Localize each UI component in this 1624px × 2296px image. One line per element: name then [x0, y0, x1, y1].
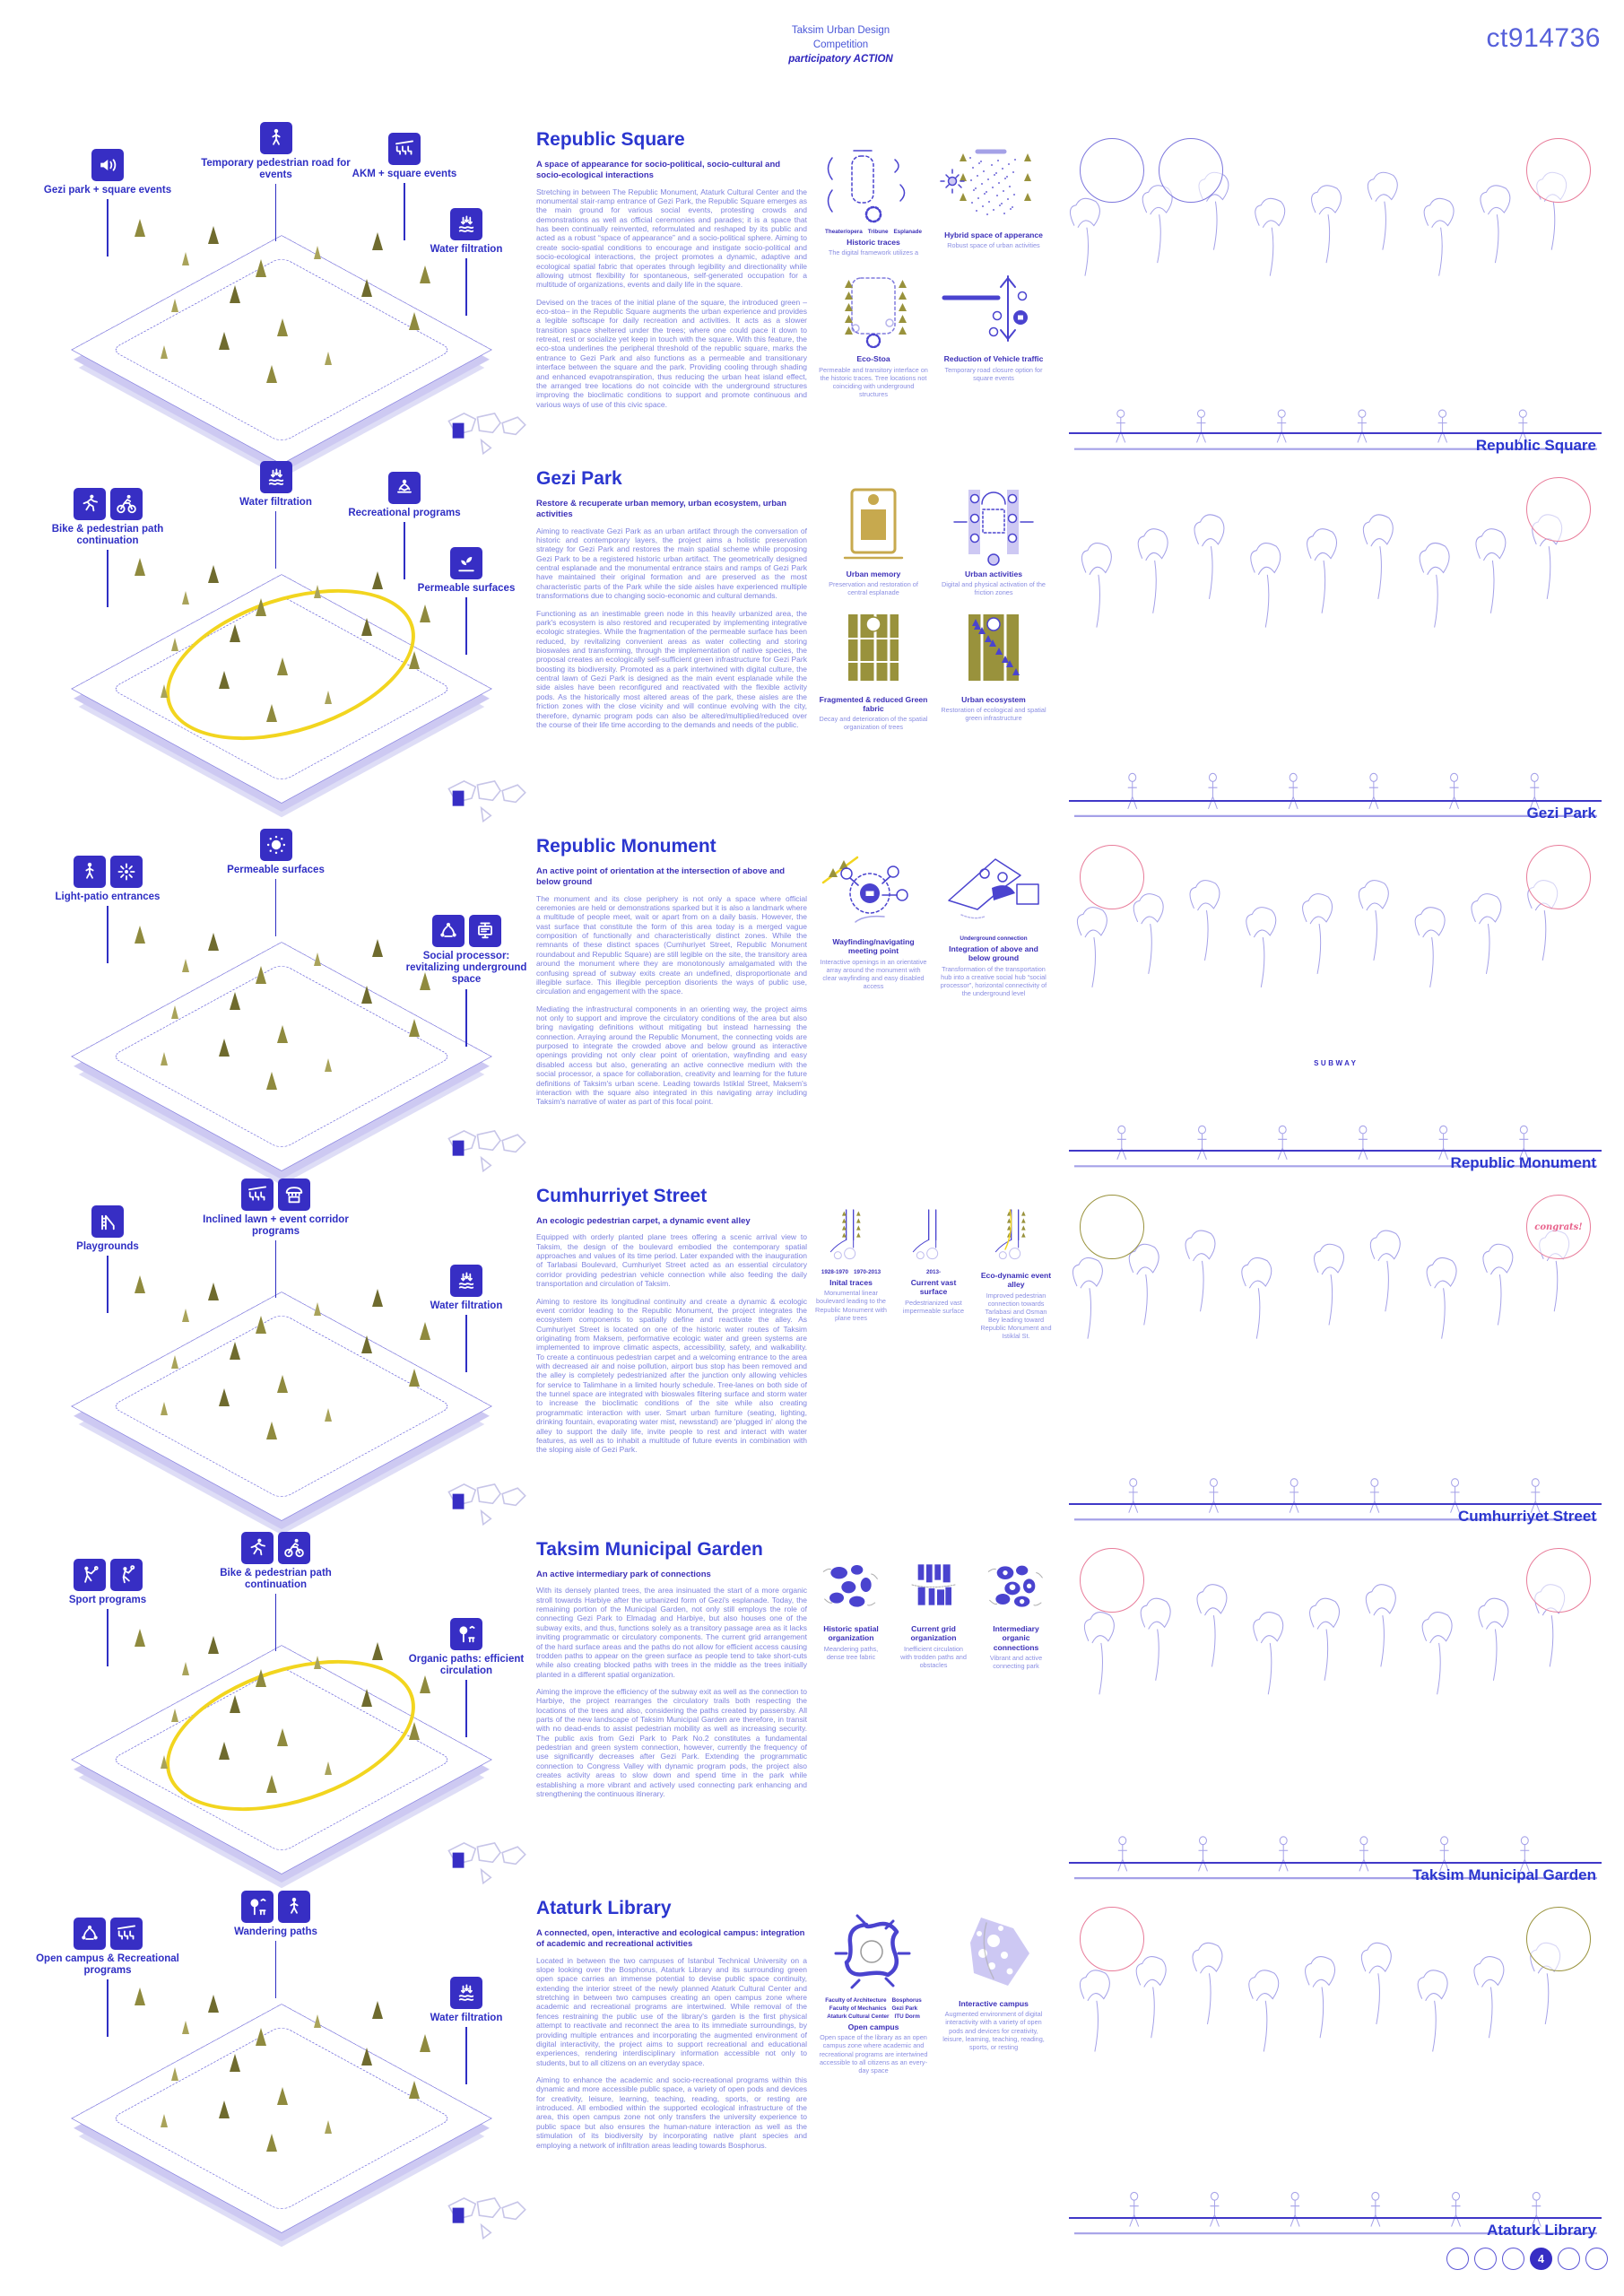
mini-diagram: Urban memoryPreservation and restoration…: [819, 484, 928, 597]
section-subhead: A connected, open, interactive and ecolo…: [536, 1928, 807, 1951]
callout-1: Bike & pedestrian path continuation: [197, 1532, 354, 1651]
annotation-badge: [1159, 138, 1223, 203]
axon-diagram-gezi-park: Bike & pedestrian path continuationWater…: [27, 465, 534, 832]
diagram-annotation: 1928-1970: [821, 1269, 848, 1275]
annotation-badge: [1080, 1195, 1144, 1259]
page-dot-6[interactable]: [1585, 2248, 1608, 2270]
illustration-note: SUBWAY: [1314, 1059, 1358, 1067]
callout-0: Bike & pedestrian path continuation: [36, 488, 179, 607]
illustration-republic-monument: SUBWAYRepublic Monument: [1067, 843, 1603, 1175]
diagram-drawing: [819, 145, 928, 228]
callout-leader-line: [107, 550, 109, 607]
callout-leader-line: [107, 906, 109, 963]
diagram-annotation: Faculty of Architecture: [825, 1997, 886, 2004]
tree-icon: [361, 1335, 372, 1353]
axon-diagram-taksim-municipal-garden: Sport programsBike & pedestrian path con…: [27, 1535, 534, 1894]
tree-icon: [230, 992, 240, 1010]
callout-leader-line: [275, 511, 277, 569]
kiosk-icon: [278, 1178, 310, 1211]
tree-icon: [372, 1289, 383, 1307]
site-key-map: [443, 1831, 529, 1885]
tree-icon: [266, 1775, 277, 1793]
diagram-caption: Robust space of urban activities: [944, 241, 1043, 249]
tree-icon: [314, 1656, 321, 1669]
annotation-badge: [1080, 138, 1144, 203]
text-column: Gezi ParkRestore & recuperate urban memo…: [536, 468, 807, 737]
sprout-icon: [450, 547, 482, 579]
tree-icon: [372, 1642, 383, 1660]
site-key-map: [443, 1473, 529, 1526]
mini-diagram-column: Wayfinding/navigating meeting pointInter…: [812, 852, 1055, 997]
tree-icon: [219, 332, 230, 350]
callout-label: Sport programs: [36, 1595, 179, 1606]
badge-row: [1080, 845, 1591, 909]
water-filtration-icon: [450, 1265, 482, 1297]
tree-icon: [161, 1052, 168, 1065]
badge-row: [1080, 1548, 1591, 1613]
callout-leader-line: [107, 1979, 109, 2037]
callout-leader-line: [465, 597, 467, 655]
text-column: Republic MonumentAn active point of orie…: [536, 836, 807, 1115]
mini-diagram: Theater/operaTribuneEsplanadeHistoric tr…: [819, 145, 928, 257]
diagram-annotation: 1970-2013: [854, 1269, 881, 1275]
callout-leader-line: [465, 1315, 467, 1372]
callout-1: Inclined lawn + event corridor programs: [197, 1178, 354, 1298]
callout-0: Light-patio entrances: [36, 856, 179, 963]
diagram-annotation: ITU Dorm: [894, 2013, 919, 2020]
tree-icon: [230, 2054, 240, 2072]
tree-icon: [325, 1761, 332, 1775]
section-paragraph-1: Located in between the two campuses of I…: [536, 1956, 807, 2067]
page-dot-4[interactable]: 4: [1530, 2248, 1552, 2270]
tree-icon: [256, 1316, 266, 1334]
page-indicator: 4: [1446, 2248, 1608, 2270]
theater-seats-icon: [110, 1918, 143, 1950]
callout-leader-line: [275, 1941, 277, 1998]
callout-2: Organic paths: efficient circulation: [404, 1618, 529, 1737]
diagram-caption: Meandering paths, dense tree fabric: [815, 1645, 887, 1661]
site-key-map: [443, 1119, 529, 1173]
section-heading: Ataturk Library: [536, 1898, 807, 1919]
axon-diagram-republic-monument: Light-patio entrancesPermeable surfacesS…: [27, 832, 534, 1182]
tree-icon: [182, 591, 189, 604]
diagram-annotation: Gezi Park: [891, 2005, 917, 2012]
diagram-annotation: Tribune: [868, 229, 889, 235]
tree-icon: [325, 1058, 332, 1072]
tree-icon: [277, 1728, 288, 1746]
diagram-drawing: [980, 1202, 1052, 1268]
title-line1: Taksim Urban Design: [762, 23, 919, 38]
illustration-baseline: [1069, 800, 1602, 802]
diagram-drawing: [939, 145, 1048, 228]
section-paragraph-1: Equipped with orderly planted plane tree…: [536, 1232, 807, 1288]
tree-icon: [182, 252, 189, 265]
tree-icon: [230, 1342, 240, 1360]
tree-icon: [230, 1695, 240, 1713]
illustration-gezi-park: Gezi Park: [1067, 475, 1603, 825]
callout-1: Wandering paths: [197, 1891, 354, 1998]
tree-icon: [161, 1402, 168, 1415]
axon-diagram-ataturk-library: Open campus & Recreational programsWande…: [27, 1894, 534, 2249]
annotation-badge: [1080, 1907, 1144, 1971]
section-subhead: An ecologic pedestrian carpet, a dynamic…: [536, 1216, 807, 1227]
mini-diagram-column: 1928-19701970-2013Inital tracesMonumenta…: [812, 1202, 1055, 1340]
tree-icon: [256, 598, 266, 616]
water-filtration-icon: [450, 208, 482, 240]
mini-diagram: Interactive campusAugmented environment …: [939, 1914, 1048, 2074]
tree-icon: [361, 1689, 372, 1707]
tree-icon: [256, 966, 266, 984]
callout-0: Sport programs: [36, 1559, 179, 1666]
mini-diagram: Intermediary organic connectionsVibrant …: [980, 1555, 1052, 1670]
diagram-drawing: [939, 484, 1048, 567]
diagram-title: Inital traces: [815, 1278, 887, 1287]
tree-icon: [171, 1709, 178, 1722]
diagram-annotation: Theater/opera: [825, 229, 863, 235]
diagram-drawing: [898, 1555, 969, 1622]
callout-0: Playgrounds: [36, 1205, 179, 1313]
callout-label: Light-patio entrances: [36, 891, 179, 903]
annotation-badge: [1080, 1548, 1144, 1613]
tree-icon: [266, 1072, 277, 1090]
callout-leader-line: [465, 989, 467, 1047]
page-dot-3[interactable]: [1502, 2248, 1524, 2270]
meditation-icon: [388, 472, 421, 504]
callout-0: Open campus & Recreational programs: [36, 1918, 179, 2037]
callout-label: Permeable surfaces: [197, 865, 354, 876]
tree-icon: [182, 959, 189, 972]
tree-icon: [219, 1039, 230, 1057]
callout-label: Playgrounds: [36, 1241, 179, 1253]
diagram-title: Urban activities: [939, 570, 1048, 578]
diagram-drawing: [939, 1914, 1048, 1996]
badge-row: [1080, 1907, 1591, 1971]
callout-label: AKM + square events: [337, 169, 472, 180]
tree-icon: [161, 2114, 168, 2127]
cyclist-icon: [278, 1532, 310, 1564]
diagram-caption: Pedestrianized vast impermeable surface: [898, 1299, 969, 1315]
diagram-drawing: [939, 610, 1048, 692]
tree-icon: [182, 2021, 189, 2034]
mini-diagram: 2013-Current vast surfacePedestrianized …: [898, 1202, 969, 1340]
illustration-baseline: [1069, 1150, 1602, 1152]
section-subhead: A space of appearance for socio-politica…: [536, 160, 807, 182]
callout-2: Water filtration: [404, 1265, 529, 1372]
mini-diagram: Faculty of ArchitectureBosphorusFaculty …: [819, 1914, 928, 2074]
presentation-board-icon: [469, 915, 501, 947]
theater-seats-icon: [241, 1178, 274, 1211]
site-key-map: [443, 770, 529, 823]
tree-icon: [314, 246, 321, 259]
callout-leader-line: [107, 1609, 109, 1666]
illustration-label: Ataturk Library: [1487, 2222, 1596, 2239]
section-paragraph-2: Aiming to enhance the academic and socio…: [536, 2075, 807, 2150]
section-paragraph-2: Aiming the improve the efficiency of the…: [536, 1687, 807, 1798]
tree-icon: [325, 1408, 332, 1422]
pedestrian-icon: [278, 1891, 310, 1923]
tree-icon: [361, 618, 372, 636]
section-heading: Republic Square: [536, 129, 807, 151]
diagram-title: Current grid organization: [898, 1624, 969, 1643]
tree-icon: [182, 1309, 189, 1322]
diagram-title: Eco-dynamic event alley: [980, 1271, 1052, 1290]
illustration-label: Republic Monument: [1451, 1154, 1596, 1172]
diagram-drawing: [939, 269, 1048, 352]
tree-icon: [256, 1669, 266, 1687]
mini-diagram: Fragmented & reduced Green fabricDecay a…: [819, 610, 928, 732]
people-network-icon: [432, 915, 465, 947]
callout-label: Temporary pedestrian road for events: [197, 158, 354, 181]
people-network-icon: [74, 1918, 106, 1950]
annotation-badge: [1526, 1548, 1591, 1613]
diagram-drawing: [819, 484, 928, 567]
diagram-caption: Interactive openings in an orientative a…: [819, 958, 928, 990]
tree-icon: [171, 299, 178, 312]
tree-icon: [161, 684, 168, 698]
mini-diagram: Eco-StoaPermeable and transitory interfa…: [819, 269, 928, 398]
section-paragraph-2: Functioning as an inestimable green node…: [536, 609, 807, 730]
axon-diagram-republic-square: Gezi park + square eventsTemporary pedes…: [27, 126, 534, 465]
callout-label: Water filtration: [404, 1300, 529, 1312]
tree-icon: [361, 2048, 372, 2066]
text-column: Republic SquareA space of appearance for…: [536, 129, 807, 417]
runner-icon: [241, 1532, 274, 1564]
callout-label: Recreational programs: [337, 508, 472, 519]
mini-diagram: Urban ecosystemRestoration of ecological…: [939, 610, 1048, 732]
board-title: Taksim Urban Design Competition particip…: [762, 23, 919, 66]
diagram-caption: Preservation and restoration of central …: [819, 580, 928, 596]
permeable-dots-icon: [260, 829, 292, 861]
cyclist-icon: [110, 488, 143, 520]
callout-leader-line: [275, 1594, 277, 1651]
section-paragraph-2: Mediating the infrastructural components…: [536, 1004, 807, 1107]
badge-row: [1080, 477, 1591, 542]
tree-icon: [277, 1025, 288, 1043]
tree-icon: [361, 986, 372, 1004]
light-burst-icon: [110, 856, 143, 888]
diagram-title: Wayfinding/navigating meeting point: [819, 937, 928, 956]
diagram-drawing: [815, 1202, 887, 1268]
section-heading: Cumhurriyet Street: [536, 1186, 807, 1207]
diagram-drawing: [819, 1914, 928, 1996]
tree-icon: [219, 671, 230, 689]
section-cumhurriyet-street: PlaygroundsInclined lawn + event corrido…: [0, 1182, 1624, 1535]
diagram-caption: Improved pedestrian connection towards T…: [980, 1291, 1052, 1341]
illustration-taksim-municipal-garden: Taksim Municipal Garden: [1067, 1546, 1603, 1887]
title-line2: Competition: [762, 38, 919, 52]
illustration-baseline: [1069, 432, 1602, 434]
tree-icon: [372, 2001, 383, 2019]
speaker-icon: [91, 149, 124, 181]
diagram-title: Historic spatial organization: [815, 1624, 887, 1643]
diagram-title: Open campus: [819, 2022, 928, 2031]
section-gezi-park: Bike & pedestrian path continuationWater…: [0, 465, 1624, 832]
mini-diagram-column: Historic spatial organizationMeandering …: [812, 1555, 1055, 1670]
mini-diagram-column: Faculty of ArchitectureBosphorusFaculty …: [812, 1914, 1055, 2074]
tree-icon: [325, 691, 332, 704]
callout-label: Wandering paths: [197, 1926, 354, 1938]
diagram-title: Urban memory: [819, 570, 928, 578]
diagram-drawing: [898, 1202, 969, 1268]
callout-leader-line: [465, 258, 467, 316]
mini-diagram: Underground connectionIntegration of abo…: [939, 852, 1048, 997]
callout-leader-line: [275, 184, 277, 241]
section-subhead: An active point of orientation at the in…: [536, 866, 807, 889]
callout-leader-line: [107, 1256, 109, 1313]
section-heading: Republic Monument: [536, 836, 807, 857]
page-dot-5[interactable]: [1558, 2248, 1580, 2270]
title-line3: participatory ACTION: [762, 52, 919, 66]
tree-icon: [325, 2120, 332, 2134]
diagram-annotation: Bosphorus: [892, 1997, 922, 2004]
tree-icon: [266, 2134, 277, 2152]
diagram-caption: Vibrant and active connecting park: [980, 1654, 1052, 1670]
illustration-republic-square: Republic Square: [1067, 136, 1603, 457]
section-heading: Gezi Park: [536, 468, 807, 490]
annotation-badge: [1526, 138, 1591, 203]
diagram-annotation: Faculty of Mechanics: [829, 2005, 887, 2012]
callout-leader-line: [275, 879, 277, 936]
page-dot-1[interactable]: [1446, 2248, 1469, 2270]
tree-icon: [230, 624, 240, 642]
page-dot-2[interactable]: [1474, 2248, 1497, 2270]
illustration-ataturk-library: Ataturk Library: [1067, 1905, 1603, 2242]
tree-icon: [314, 585, 321, 598]
diagram-title: Eco-Stoa: [819, 354, 928, 363]
diagram-caption: Inefficient circulation with trodden pat…: [898, 1645, 969, 1669]
diagram-caption: Restoration of ecological and spatial gr…: [939, 706, 1048, 722]
diagram-caption: Temporary road closure option for square…: [939, 366, 1048, 382]
diagram-title: Current vast surface: [898, 1278, 969, 1297]
callout-2: Social processor: revitalizing undergrou…: [404, 915, 529, 1047]
callout-3: Water filtration: [404, 208, 529, 316]
pedestrian-icon: [260, 122, 292, 154]
diagram-caption: Augmented environment of digital interac…: [939, 2010, 1048, 2051]
mini-diagram: Reduction of Vehicle trafficTemporary ro…: [939, 269, 1048, 398]
tree-icon: [266, 704, 277, 722]
callout-label: Gezi park + square events: [36, 185, 179, 196]
section-subhead: Restore & recuperate urban memory, urban…: [536, 499, 807, 521]
tree-icon: [171, 638, 178, 651]
competition-board: Taksim Urban Design Competition particip…: [0, 0, 1624, 2296]
callout-label: Water filtration: [404, 244, 529, 256]
mini-diagram-column: Urban memoryPreservation and restoration…: [812, 484, 1055, 731]
callout-label: Water filtration: [404, 2013, 529, 2024]
diagram-caption: Decay and deterioration of the spatial o…: [819, 715, 928, 731]
section-paragraph-1: Stretching in between The Republic Monum…: [536, 187, 807, 290]
diagram-annotation: Esplanade: [893, 229, 922, 235]
tree-icon: [314, 2014, 321, 2028]
illustration-label: Taksim Municipal Garden: [1412, 1866, 1596, 1884]
callout-label: Inclined lawn + event corridor programs: [197, 1214, 354, 1238]
annotation-badge: [1080, 845, 1144, 909]
diagram-annotation: 2013-: [926, 1269, 941, 1275]
section-paragraph-2: Aiming to restore its longitudinal conti…: [536, 1297, 807, 1455]
section-heading: Taksim Municipal Garden: [536, 1539, 807, 1561]
diagram-title: Fragmented & reduced Green fabric: [819, 695, 928, 714]
mini-diagram: Historic spatial organizationMeandering …: [815, 1555, 887, 1670]
annotation-badge: congrats!: [1526, 1195, 1591, 1259]
tree-icon: [171, 1355, 178, 1369]
diagram-caption: Permeable and transitory interface on th…: [819, 366, 928, 398]
diagram-drawing: [819, 610, 928, 692]
tree-icon: [219, 1388, 230, 1406]
illustration-baseline: [1069, 2217, 1602, 2219]
callout-label: Bike & pedestrian path continuation: [36, 524, 179, 547]
illustration-baseline: [1069, 1862, 1602, 1864]
callout-label: Water filtration: [197, 497, 354, 509]
tree-icon: [361, 279, 372, 297]
section-republic-square: Gezi park + square eventsTemporary pedes…: [0, 126, 1624, 465]
callout-label: Organic paths: efficient circulation: [404, 1654, 529, 1677]
diagram-caption: Monumental linear boulevard leading to t…: [815, 1289, 887, 1321]
annotation-badge: [1526, 1907, 1591, 1971]
callout-3: Permeable surfaces: [404, 547, 529, 655]
text-column: Taksim Municipal GardenAn active interme…: [536, 1539, 807, 1806]
badge-row: [1080, 138, 1591, 203]
callout-label: Open campus & Recreational programs: [36, 1953, 179, 1977]
diagram-drawing: [980, 1555, 1052, 1622]
illustration-cumhurriyet-street: congrats!Cumhurriyet Street: [1067, 1193, 1603, 1528]
diagram-title: Urban ecosystem: [939, 695, 1048, 704]
callout-2: Water filtration: [404, 1977, 529, 2084]
badge-label: congrats!: [1534, 1222, 1582, 1232]
mini-diagram: Eco-dynamic event alleyImproved pedestri…: [980, 1202, 1052, 1340]
tree-icon: [277, 657, 288, 675]
theater-seats-icon: [388, 133, 421, 165]
callout-label: Social processor: revitalizing undergrou…: [404, 951, 529, 987]
mini-diagram-column: Theater/operaTribuneEsplanadeHistoric tr…: [812, 145, 1055, 398]
tree-icon: [277, 2087, 288, 2105]
tree-icon: [277, 318, 288, 336]
section-paragraph-1: Aiming to reactivate Gezi Park as an urb…: [536, 526, 807, 601]
diagram-caption: Open space of the library as an open cam…: [819, 2033, 928, 2074]
tree-icon: [325, 352, 332, 365]
tree-icon: [256, 2028, 266, 2046]
illustration-label: Republic Square: [1476, 437, 1596, 455]
water-filtration-icon: [260, 461, 292, 493]
diagram-drawing: [939, 852, 1048, 935]
callout-1: Permeable surfaces: [197, 829, 354, 936]
illustration-label: Cumhurriyet Street: [1458, 1508, 1596, 1526]
section-subhead: An active intermediary park of connectio…: [536, 1570, 807, 1580]
callout-leader-line: [465, 2027, 467, 2084]
diagram-title: Historic traces: [829, 238, 918, 247]
slide-icon: [91, 1205, 124, 1238]
callout-0: Gezi park + square events: [36, 149, 179, 257]
tree-icon: [161, 1755, 168, 1769]
callout-leader-line: [275, 1240, 277, 1298]
section-paragraph-1: With its densely planted trees, the area…: [536, 1586, 807, 1679]
tree-icon: [277, 1375, 288, 1393]
tree-icon: [266, 1422, 277, 1439]
annotation-badge: [1526, 477, 1591, 542]
callout-1: Temporary pedestrian road for events: [197, 122, 354, 241]
annotation-badge: [1526, 845, 1591, 909]
tree-icon: [219, 1742, 230, 1760]
diagram-title: Intermediary organic connections: [980, 1624, 1052, 1652]
tree-icon: [171, 1005, 178, 1019]
diagram-title: Reduction of Vehicle traffic: [939, 354, 1048, 363]
mini-diagram: Current grid organizationInefficient cir…: [898, 1555, 969, 1670]
text-column: Cumhurriyet StreetAn ecologic pedestrian…: [536, 1186, 807, 1463]
project-id: ct914736: [1487, 23, 1601, 54]
diagram-annotation: Underground connection: [960, 935, 1027, 942]
tree-icon: [372, 939, 383, 957]
section-taksim-municipal-garden: Sport programsBike & pedestrian path con…: [0, 1535, 1624, 1894]
pedestrian-icon: [74, 856, 106, 888]
tree-icon: [266, 365, 277, 383]
